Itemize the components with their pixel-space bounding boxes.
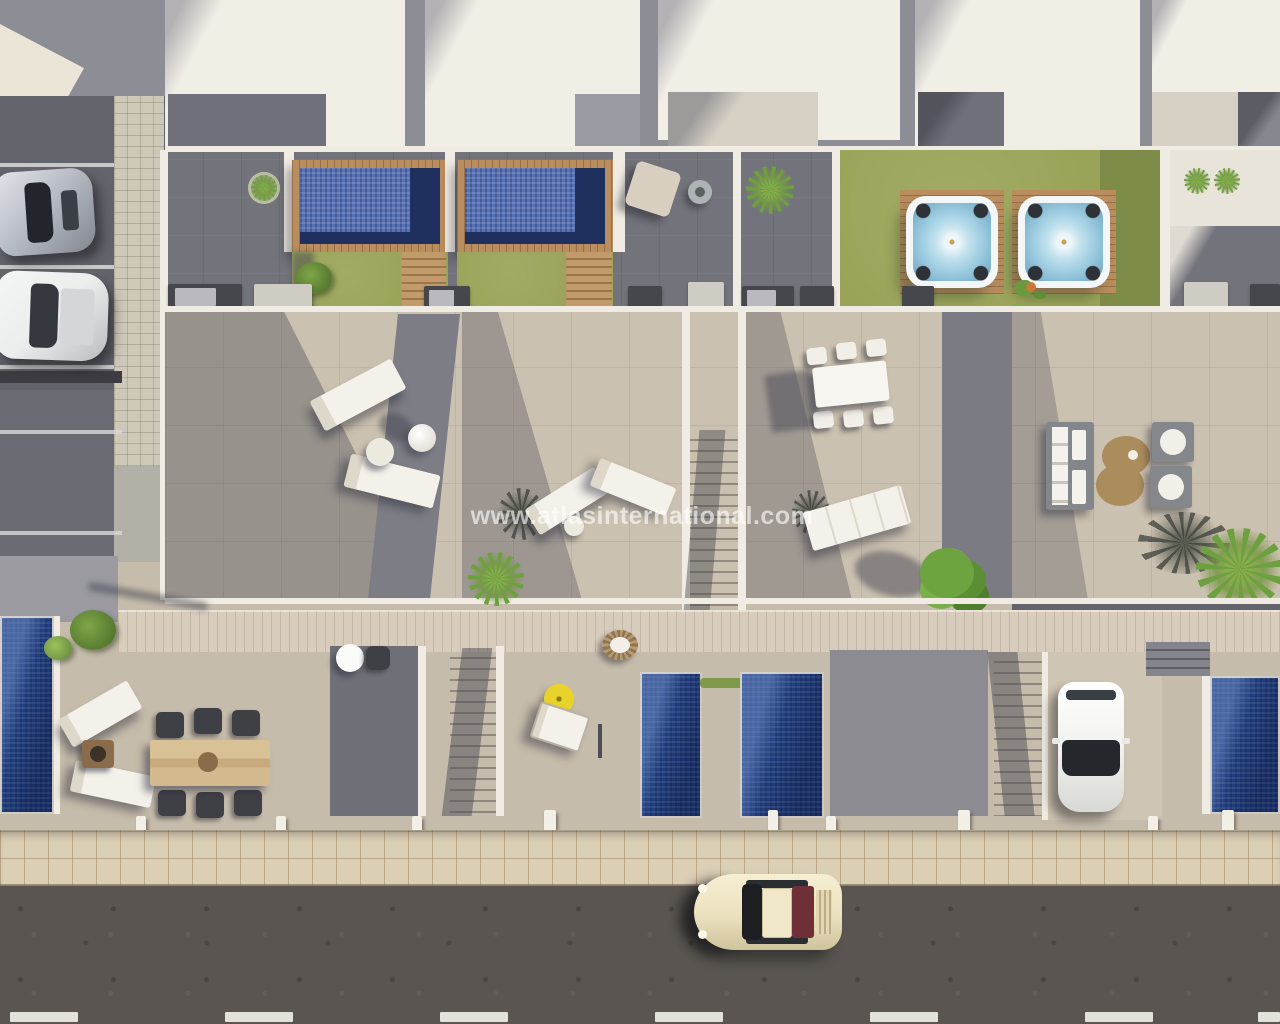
- pergola-post: [598, 724, 602, 758]
- parking-line: [0, 430, 122, 434]
- lane-marking: [1258, 1012, 1280, 1022]
- parking-line: [0, 531, 122, 535]
- car-roof: [762, 888, 792, 938]
- dining-chair: [194, 708, 222, 734]
- car-roof: [59, 288, 95, 345]
- car-mirror: [1052, 738, 1060, 744]
- wall-post: [768, 810, 778, 832]
- car-rear-deck: [816, 890, 832, 934]
- boardwalk: [118, 610, 1280, 652]
- dining-chair: [232, 710, 260, 736]
- shaded-patio: [330, 646, 418, 816]
- parking-curb: [0, 371, 122, 383]
- garden-pool: [1210, 676, 1280, 814]
- shaded-patio: [830, 650, 988, 816]
- lane-marking: [225, 1012, 293, 1022]
- garden-pool: [740, 672, 824, 818]
- dining-chair: [234, 790, 262, 816]
- outdoor-sofa: [1046, 422, 1094, 510]
- potted-plant: [251, 175, 277, 201]
- side-table: [366, 438, 394, 466]
- sun-lounger: [57, 680, 142, 748]
- car-rear-window: [792, 886, 814, 938]
- wide-steps: [1146, 642, 1210, 676]
- dividing-wall: [733, 150, 741, 312]
- dividing-wall: [1160, 150, 1170, 312]
- patio-wall: [496, 646, 504, 816]
- car-mirror: [1122, 738, 1130, 744]
- armchair: [1152, 422, 1194, 462]
- plunge-pool: [300, 168, 440, 244]
- woven-lounge-chair: [602, 630, 638, 660]
- sun-lounger: [529, 701, 590, 753]
- car-windshield: [29, 283, 59, 348]
- jacuzzi: [906, 196, 998, 288]
- pool-wall: [613, 150, 625, 252]
- car-windshield: [1062, 740, 1120, 776]
- classic-car: [686, 870, 850, 956]
- small-palm: [1214, 168, 1240, 194]
- garden-bush: [44, 636, 72, 660]
- garden-bush: [70, 610, 116, 650]
- car-rear-glass: [1066, 690, 1116, 700]
- road: [0, 886, 1280, 1024]
- pool-wall: [445, 150, 455, 252]
- watermark: www.atlasinternational.com: [448, 502, 836, 531]
- dining-chair: [156, 712, 184, 738]
- lane-marking: [655, 1012, 723, 1022]
- pool-coping: [1202, 676, 1210, 814]
- lane-marking: [10, 1012, 78, 1022]
- plunge-pool: [465, 168, 605, 244]
- car-headlight: [698, 930, 707, 939]
- flower: [1026, 282, 1036, 292]
- car-silver: [0, 162, 101, 261]
- cafe-table: [336, 644, 364, 672]
- lane-marking: [870, 1012, 938, 1022]
- parasol-top: [408, 424, 436, 452]
- paver-strip: [114, 96, 164, 466]
- dining-chair: [196, 792, 224, 818]
- lane-marking: [440, 1012, 508, 1022]
- car-white-sedan: [0, 266, 114, 366]
- wall-post: [958, 810, 970, 832]
- garden-pool: [640, 672, 702, 818]
- armchair: [1150, 466, 1192, 508]
- palm-tree: [746, 166, 794, 214]
- car-headlight: [698, 884, 707, 893]
- wall-post: [1222, 810, 1234, 832]
- parking-lot-lower: [0, 390, 122, 562]
- lane-marking: [1085, 1012, 1153, 1022]
- dining-chair: [158, 790, 186, 816]
- patio-wall: [418, 646, 426, 816]
- wall-post: [544, 810, 556, 832]
- aerial-render-scene: www.atlasinternational.com: [0, 0, 1280, 1024]
- sidewalk: [0, 830, 1280, 886]
- small-palm: [1184, 168, 1210, 194]
- car-rear-window: [61, 190, 80, 231]
- palm-tree: [468, 552, 524, 606]
- car-windshield: [742, 884, 762, 940]
- dining-table: [812, 360, 890, 408]
- jacuzzi: [1018, 196, 1110, 288]
- fire-pit: [82, 740, 114, 768]
- car-windshield: [24, 182, 54, 244]
- dining-set: [792, 336, 912, 433]
- table-bowl: [198, 752, 218, 772]
- garden-steps: [566, 252, 612, 312]
- wall-top: [114, 466, 164, 562]
- cafe-chair: [366, 646, 390, 670]
- leafy-plant: [920, 548, 974, 598]
- fire-bowl-table: [688, 180, 712, 204]
- round-rug: [1096, 464, 1144, 506]
- stair-wall: [738, 312, 746, 646]
- car-white-suv: [1054, 676, 1132, 818]
- tray: [1128, 450, 1138, 460]
